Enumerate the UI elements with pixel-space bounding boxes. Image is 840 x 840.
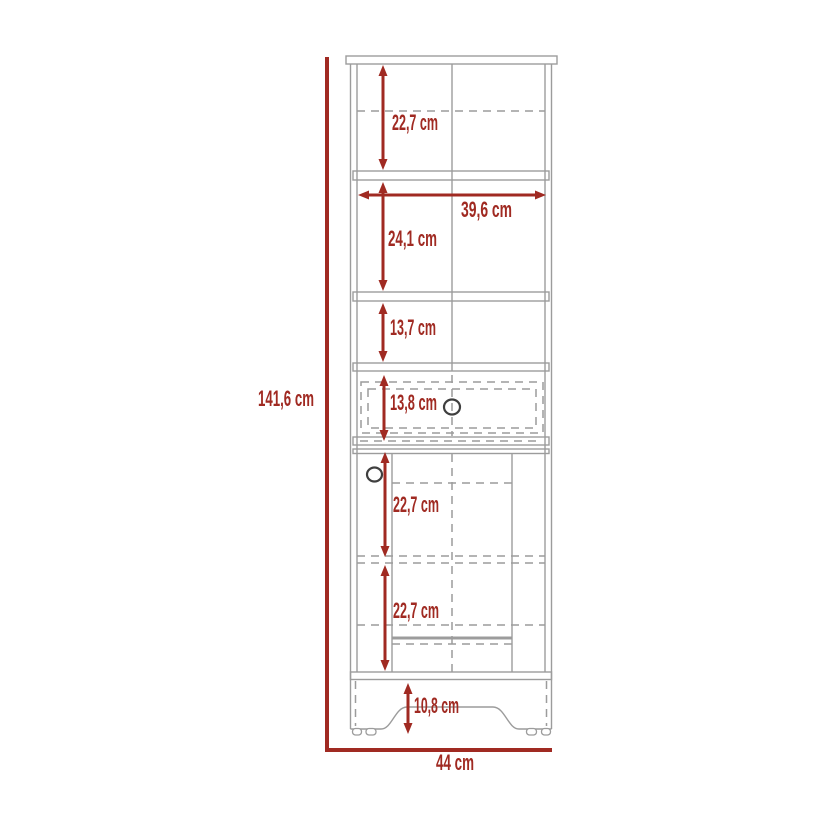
cabinet-bottom-band [351, 672, 552, 680]
arrow-head-top [381, 565, 390, 576]
foot-left-outer [353, 729, 362, 736]
label-third-section: 13,7 cm [390, 315, 436, 340]
arrow-head-bottom [381, 660, 390, 671]
label-overall-width: 44 cm [436, 750, 474, 775]
door-top-edge [353, 449, 549, 454]
cabinet-dimension-diagram: 22,7 cm 39,6 cm 24,1 cm 13,7 cm 13,8 cm … [0, 0, 840, 840]
label-door-upper: 22,7 cm [393, 492, 439, 517]
foot-right-inner [527, 729, 537, 736]
overall-dimension-line [327, 57, 552, 750]
label-base: 10,8 cm [414, 693, 459, 718]
label-door-lower: 22,7 cm [393, 598, 439, 623]
cabinet-top-board [346, 56, 557, 64]
label-second-section: 24,1 cm [388, 226, 437, 251]
foot-left-inner [366, 729, 376, 736]
cabinet-outline [346, 56, 557, 735]
label-inner-width: 39,6 cm [461, 197, 512, 222]
shelf-3 [353, 363, 549, 371]
arrow-head-bottom [404, 723, 413, 734]
label-top-section: 22,7 cm [392, 110, 438, 135]
dimension-diagram-canvas: 22,7 cm 39,6 cm 24,1 cm 13,7 cm 13,8 cm … [0, 0, 840, 840]
label-drawer: 13,8 cm [390, 390, 437, 415]
arrow-head-top [379, 65, 388, 76]
arrow-head-left [358, 191, 369, 200]
label-overall-height: 141,6 cm [258, 386, 314, 411]
arrow-head-top [404, 683, 413, 694]
arrow-head-top [379, 182, 388, 193]
arrow-head-top [380, 375, 389, 386]
foot-right-outer [542, 729, 551, 736]
shelf-2 [353, 292, 549, 301]
arrow-head-bottom [379, 159, 388, 170]
arrow-head-bottom [379, 351, 388, 362]
door-knob [367, 468, 382, 482]
arrow-head-bottom [379, 280, 388, 291]
shelf-1 [353, 171, 549, 180]
arrow-head-top [379, 303, 388, 314]
